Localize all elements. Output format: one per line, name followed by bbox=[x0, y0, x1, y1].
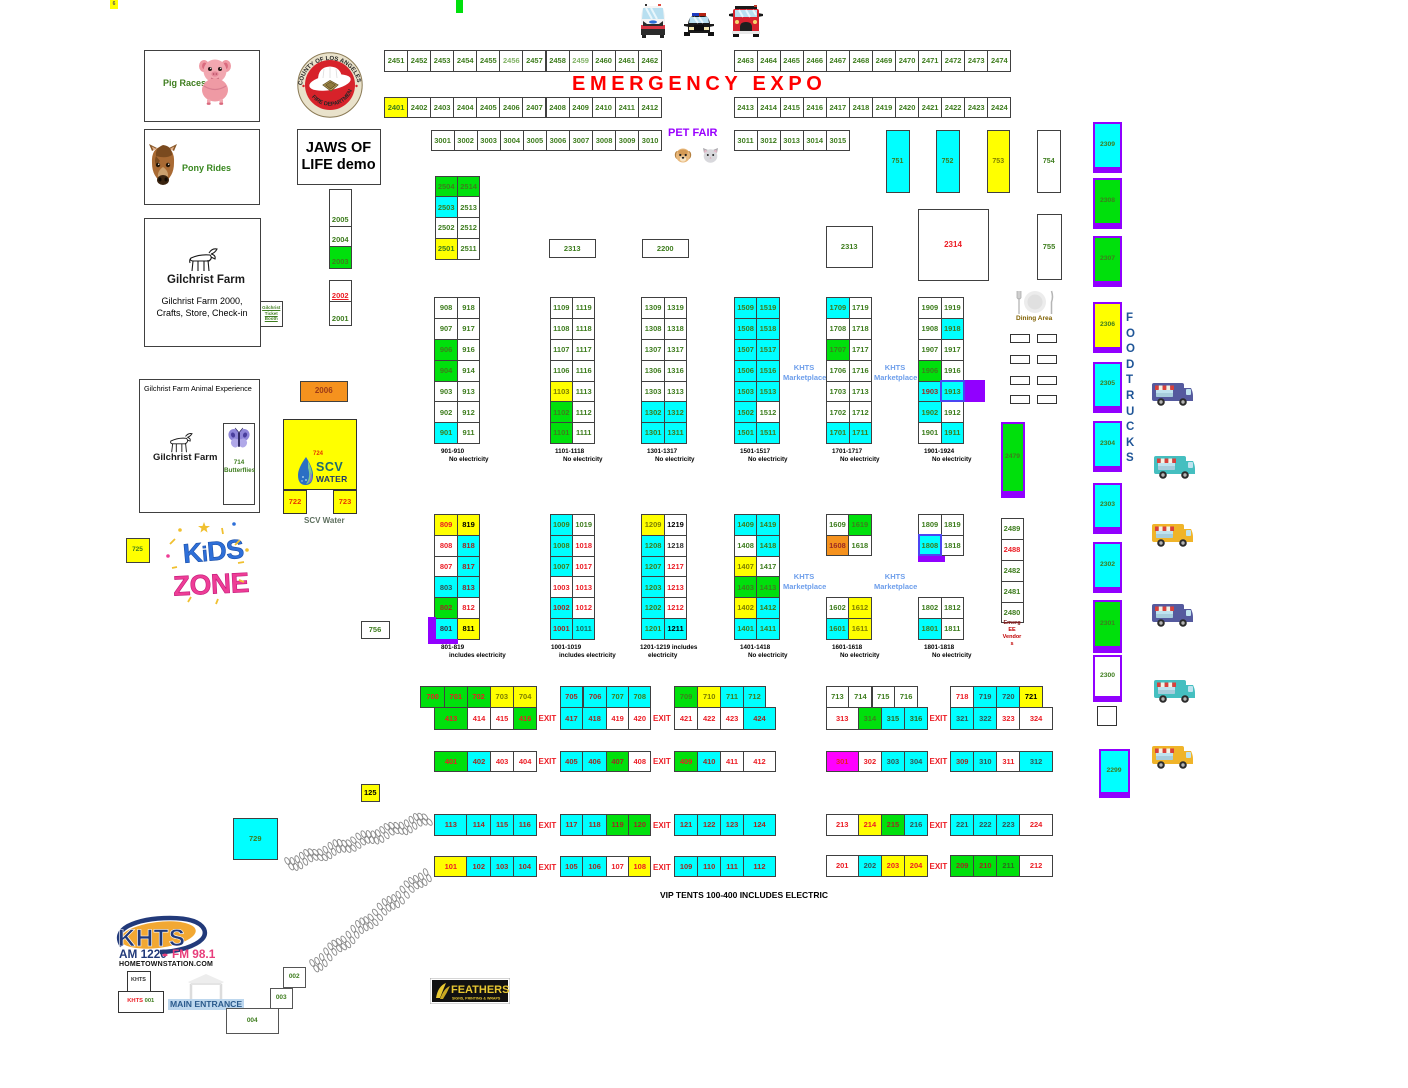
svg-text:SCV: SCV bbox=[316, 460, 343, 474]
svg-text:AM 1220: AM 1220 bbox=[119, 947, 167, 961]
svg-text:FEATHERS: FEATHERS bbox=[451, 984, 509, 996]
svg-text:FM 98.1: FM 98.1 bbox=[172, 947, 216, 961]
svg-text:ZONE: ZONE bbox=[172, 567, 249, 602]
svg-text:WATER: WATER bbox=[316, 474, 348, 484]
svg-text:SIGNS, PRINTING & WRAPS: SIGNS, PRINTING & WRAPS bbox=[452, 997, 501, 1001]
svg-text:KiDS: KiDS bbox=[182, 534, 245, 569]
svg-text:HOMETOWNSTATION.COM: HOMETOWNSTATION.COM bbox=[119, 961, 213, 968]
